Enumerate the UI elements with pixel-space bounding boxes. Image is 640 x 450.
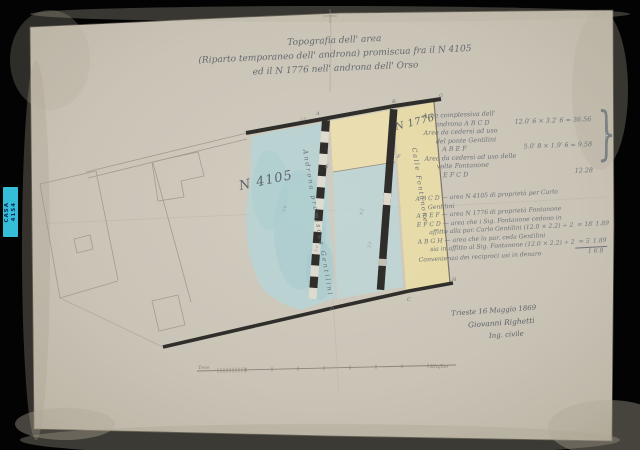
corner-letter: A bbox=[315, 111, 320, 117]
archive-label-line1: CASA bbox=[4, 202, 10, 223]
archive-label-line2: 4154 bbox=[11, 202, 17, 221]
scale-left-label: Tese bbox=[198, 365, 209, 371]
scale-right-label: Klafter bbox=[429, 364, 450, 370]
corner-letter: C bbox=[407, 297, 411, 303]
brace-annotation: misura bbox=[603, 124, 609, 168]
corner-letter: E bbox=[324, 164, 329, 170]
area-computation-block: Area complessiva dell' androna A B C D12… bbox=[423, 106, 593, 180]
archive-shelf-label: CASA 4154 bbox=[3, 187, 18, 237]
photograph-of-plan: A B C D E F G H 2.0 4.2 3.1 2.6 5.0 N 41… bbox=[0, 0, 640, 450]
corner-letter: B bbox=[391, 99, 396, 105]
corner-letter: G bbox=[439, 93, 443, 99]
corner-letter: D bbox=[329, 306, 334, 312]
corner-letter: H bbox=[451, 277, 457, 283]
blue-wash-androna bbox=[333, 162, 403, 299]
agreement-notes-block: A B C D — area N 4105 di proprietà per C… bbox=[415, 186, 603, 265]
yellow-wash-mid bbox=[330, 110, 395, 172]
corner-letter: F bbox=[396, 154, 401, 160]
